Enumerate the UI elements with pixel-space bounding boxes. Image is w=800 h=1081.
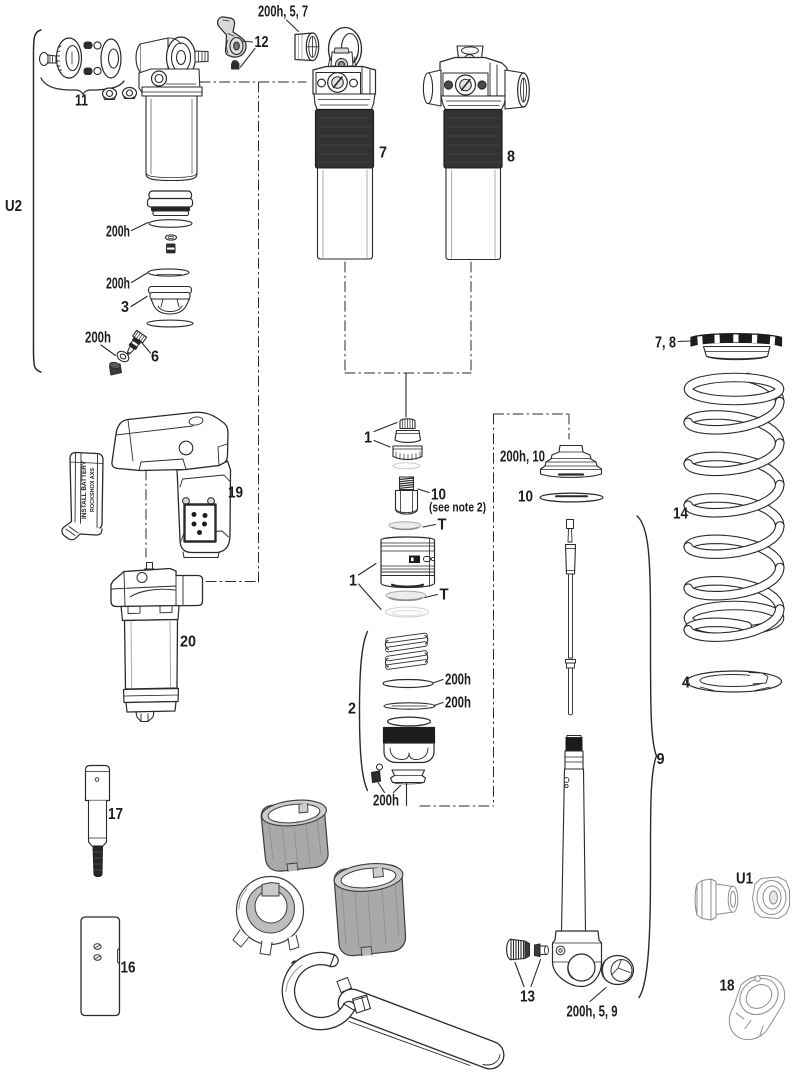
svg-text:200h, 5, 9: 200h, 5, 9 — [567, 1004, 618, 1021]
svg-text:18: 18 — [720, 978, 735, 995]
svg-text:8: 8 — [507, 149, 515, 166]
svg-text:(see note 2): (see note 2) — [429, 501, 486, 515]
svg-text:U1: U1 — [736, 871, 753, 888]
svg-text:200h: 200h — [445, 672, 471, 689]
svg-text:1: 1 — [349, 573, 357, 590]
svg-text:11: 11 — [75, 93, 88, 110]
svg-text:13: 13 — [520, 989, 535, 1006]
svg-text:T: T — [440, 587, 450, 604]
svg-text:200h: 200h — [373, 793, 399, 810]
svg-text:3: 3 — [121, 299, 129, 316]
svg-text:200h: 200h — [85, 330, 111, 347]
svg-text:20: 20 — [180, 634, 196, 651]
svg-text:200h: 200h — [106, 224, 130, 241]
svg-text:T: T — [438, 517, 448, 534]
svg-text:1: 1 — [364, 430, 372, 447]
svg-text:INSTALL BATTERY: INSTALL BATTERY — [81, 460, 88, 519]
svg-text:U2: U2 — [5, 198, 22, 215]
svg-text:2: 2 — [348, 701, 356, 718]
svg-text:10: 10 — [518, 489, 533, 506]
svg-text:ROCKSHOX AXS: ROCKSHOX AXS — [90, 467, 96, 512]
svg-text:14: 14 — [673, 506, 688, 523]
svg-text:7, 8: 7, 8 — [655, 335, 676, 352]
svg-text:200h: 200h — [106, 276, 130, 293]
svg-text:200h, 10: 200h, 10 — [500, 449, 545, 466]
svg-text:16: 16 — [121, 960, 136, 977]
svg-text:19: 19 — [228, 485, 243, 502]
svg-text:6: 6 — [151, 349, 159, 366]
svg-text:12: 12 — [255, 34, 269, 51]
svg-text:7: 7 — [379, 145, 387, 162]
svg-text:9: 9 — [657, 751, 665, 768]
svg-text:200h: 200h — [445, 695, 471, 712]
svg-text:200h, 5, 7: 200h, 5, 7 — [258, 4, 308, 21]
svg-text:4: 4 — [682, 675, 690, 692]
svg-text:17: 17 — [108, 806, 123, 823]
